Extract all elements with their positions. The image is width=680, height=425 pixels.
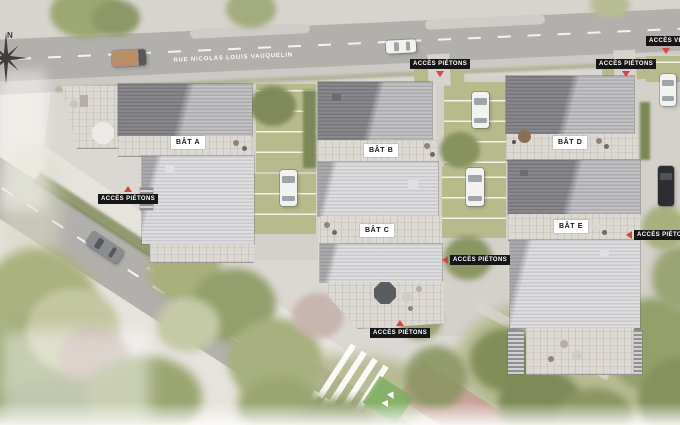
car-window (94, 237, 105, 249)
car (280, 170, 297, 206)
car-window (474, 98, 487, 105)
car-window (406, 42, 410, 51)
access-marker-pedestrian-left: ACCÈS PIÉTONS (98, 186, 158, 204)
street-name-rue: RUE NICOLAS LOUIS VAUQUELIN (173, 52, 293, 63)
access-marker-label: ACCÈS PIÉTONS (98, 194, 158, 204)
car (660, 74, 676, 106)
furniture (80, 95, 88, 107)
tree (405, 346, 467, 410)
hedge (303, 90, 316, 168)
tree (642, 206, 680, 250)
car (386, 39, 417, 54)
site-plan: RUE NICOLAS LOUIS VAUQUELIN AVENUE DE TA… (0, 0, 680, 425)
car-window (108, 247, 117, 258)
access-marker-label: ACCÈS PIÉTONS (450, 255, 510, 265)
roof-vent (408, 180, 418, 188)
furniture (92, 122, 114, 144)
furniture (233, 140, 239, 146)
tree (250, 86, 296, 126)
furniture (430, 152, 435, 157)
car-window (282, 196, 295, 201)
roof-vent (332, 94, 341, 101)
car-window (660, 173, 672, 180)
furniture (324, 222, 330, 228)
arrow-down-icon (622, 71, 630, 77)
furniture (602, 230, 607, 235)
furniture (592, 222, 601, 231)
tree (86, 356, 202, 425)
arrow-down-icon (436, 71, 444, 77)
car-window (394, 42, 399, 51)
furniture (518, 130, 531, 143)
roof-vent (600, 250, 609, 257)
terrace (150, 244, 254, 263)
hedge (640, 102, 650, 160)
car (658, 166, 674, 206)
access-marker-pedestrian-top-center: ACCÈS PIÉTONS (410, 59, 470, 77)
building-roof (320, 244, 442, 282)
access-marker-pedestrian-mid-right: ACCÈS PIÉTONS (442, 255, 510, 265)
access-marker-label: ACCÈS PIÉTONS (634, 230, 680, 240)
building-roof (318, 162, 438, 216)
bike-chevron-icon (387, 389, 397, 398)
car-window (282, 176, 295, 183)
building-roof (510, 240, 640, 328)
car-window (474, 118, 487, 123)
truck (112, 49, 147, 67)
bike-chevron-icon (381, 398, 391, 407)
access-marker-label: ACCÈS VÉHICULES (646, 36, 680, 46)
car-window (468, 175, 482, 182)
arrow-left-icon (626, 231, 632, 239)
car-window (662, 96, 674, 101)
building-label-bat-d: BÂT D (553, 136, 587, 149)
arrow-left-icon (442, 256, 448, 264)
building-roof (318, 82, 432, 140)
car-window (468, 196, 482, 201)
arrow-up-icon (124, 186, 132, 192)
building-roof (142, 156, 254, 244)
car (472, 92, 489, 128)
furniture (596, 138, 602, 144)
roof-vent (165, 165, 174, 172)
furniture (70, 100, 78, 108)
car-window (662, 80, 674, 86)
arrow-up-icon (396, 320, 404, 326)
furniture (572, 350, 582, 360)
tree (440, 132, 480, 168)
arrow-down-icon (662, 48, 670, 54)
access-marker-pedestrian-top-right: ACCÈS PIÉTONS (596, 59, 656, 77)
furniture (408, 306, 413, 311)
access-marker-vehicles-top-right: ACCÈS VÉHICULES (646, 36, 680, 54)
access-marker-pedestrian-bottom-center: ACCÈS PIÉTONS (370, 320, 430, 338)
access-marker-label: ACCÈS PIÉTONS (410, 59, 470, 69)
furniture (560, 340, 568, 348)
building-roof (118, 84, 252, 136)
building-roof (506, 76, 634, 134)
tree (156, 298, 220, 352)
access-marker-pedestrian-far-right: ACCÈS PIÉTONS (626, 230, 680, 240)
car (466, 168, 484, 206)
furniture (604, 144, 609, 149)
tree (92, 0, 140, 36)
furniture (332, 230, 337, 235)
furniture (402, 292, 412, 302)
compass-icon (0, 32, 28, 84)
roof-vent (520, 170, 528, 176)
furniture (512, 140, 516, 144)
access-marker-label: ACCÈS PIÉTONS (596, 59, 656, 69)
building-label-bat-a: BÂT A (171, 136, 205, 149)
access-marker-label: ACCÈS PIÉTONS (370, 328, 430, 338)
building-roof (508, 160, 640, 214)
louver (508, 330, 524, 374)
furniture (416, 286, 422, 292)
furniture (242, 146, 247, 151)
louver (634, 330, 642, 374)
compass-north-label: N (7, 31, 13, 40)
building-label-bat-c: BÂT C (360, 224, 394, 237)
furniture (548, 356, 554, 362)
building-label-bat-b: BÂT B (364, 144, 398, 157)
furniture (424, 143, 430, 149)
building-label-bat-e: BÂT E (554, 220, 588, 233)
